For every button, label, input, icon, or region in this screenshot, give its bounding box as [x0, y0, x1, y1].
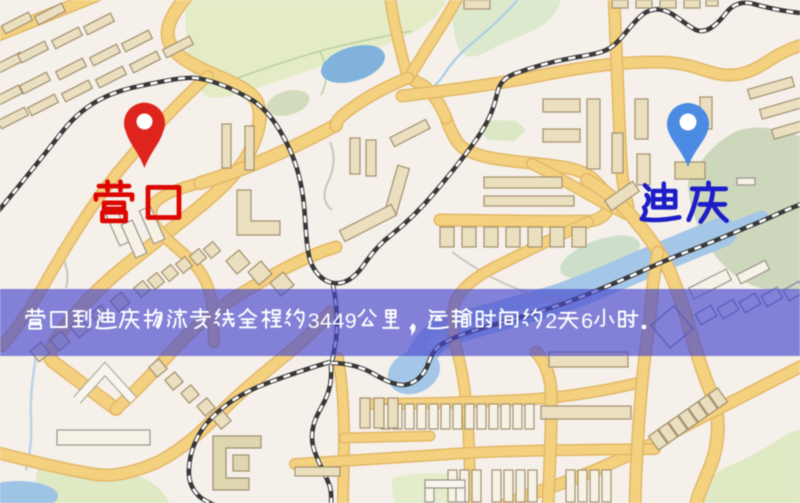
- svg-text:6: 6: [581, 309, 593, 333]
- svg-text:3449: 3449: [308, 309, 357, 333]
- svg-text:2: 2: [545, 309, 557, 333]
